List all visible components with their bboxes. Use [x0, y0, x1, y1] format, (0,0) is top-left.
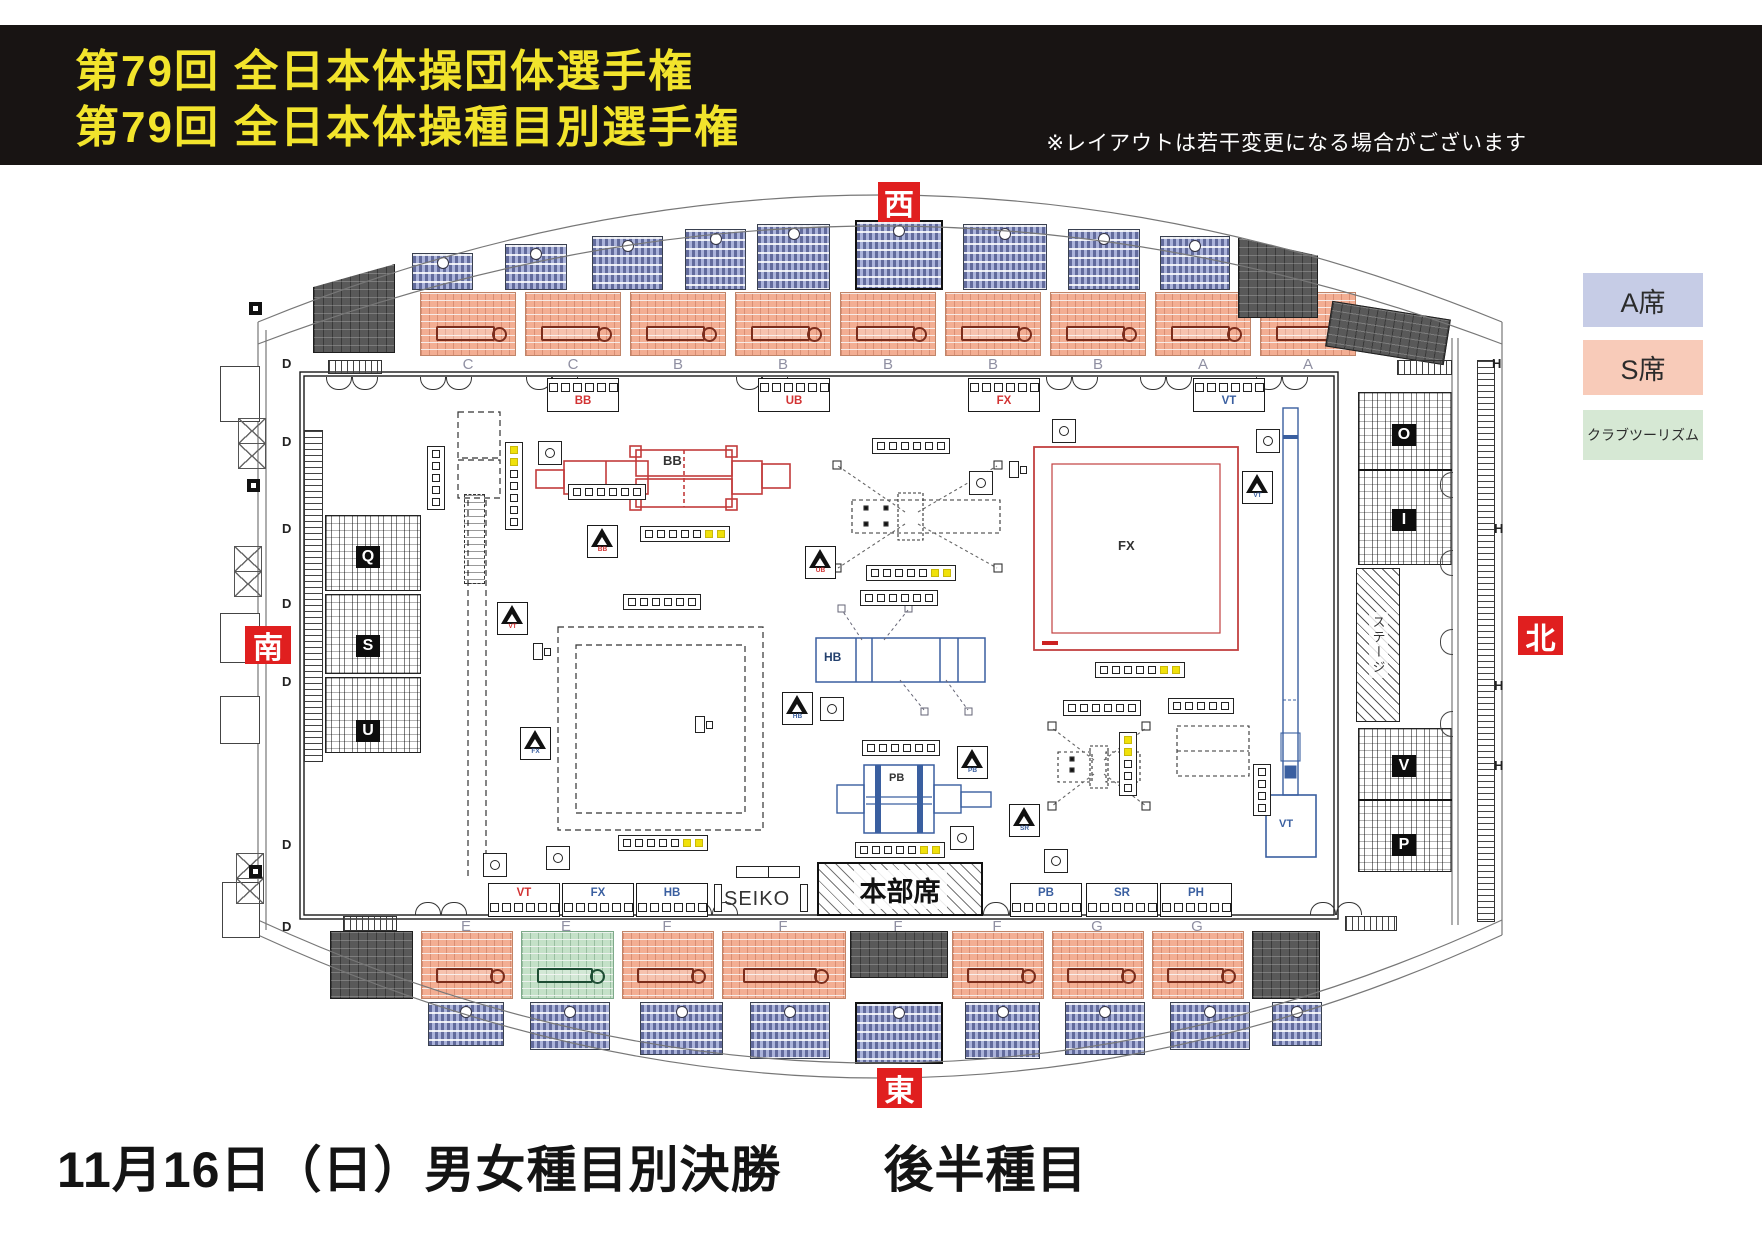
a-seat-block	[505, 244, 567, 290]
door-arc	[1440, 629, 1453, 655]
camera-bench	[967, 968, 1023, 983]
triangle-label: FX	[521, 749, 550, 756]
camera-box	[820, 697, 844, 721]
reserved-dark-section	[1238, 238, 1318, 318]
scaffold-brace	[236, 878, 264, 904]
camera-triangle-FX: FX	[520, 727, 551, 760]
section-letter-B: B	[988, 356, 998, 373]
legend-A席: A席	[1583, 273, 1703, 327]
judge-table-label: HB	[664, 888, 681, 900]
triangle-label: VT	[1243, 493, 1272, 500]
stand-label-U: U	[356, 720, 380, 742]
judge-panel	[862, 740, 940, 756]
judge-table-SR: SR	[1086, 883, 1158, 917]
judge-table-label: BB	[575, 396, 592, 408]
pommel-horse-ph	[1177, 726, 1249, 776]
judge-table-label: FX	[997, 396, 1012, 408]
section-letter-E: E	[461, 918, 471, 935]
judge-seats	[970, 383, 1039, 392]
camera-bench	[537, 968, 594, 983]
a-seat-block	[1170, 1002, 1250, 1050]
direction-西: 西	[878, 182, 920, 222]
triangle-glyph-inner	[597, 537, 607, 545]
judge-panel	[618, 835, 708, 851]
equipment-marker	[695, 716, 705, 733]
corridor-letter-D: D	[282, 521, 291, 536]
section-letter-F: F	[992, 918, 1001, 935]
camera-bench	[1067, 968, 1123, 983]
s-seat-section	[1052, 931, 1144, 999]
headquarters-label: 本部席	[854, 870, 947, 909]
equipment-tower	[464, 494, 485, 584]
judge-panel	[866, 565, 956, 581]
corridor-letter-D: D	[282, 356, 291, 371]
triangle-glyph-inner	[530, 739, 540, 747]
triangle-glyph-inner	[815, 558, 825, 566]
judge-panel	[872, 438, 950, 454]
s-seat-section	[735, 292, 831, 356]
arena-floor-plan: ステージ 本部席 SEIKO BB FX HB PB VT QSUOIVPCCB…	[0, 0, 1762, 1245]
structural-pillar	[249, 302, 262, 315]
camera-box	[1256, 429, 1280, 453]
triangle-glyph-inner	[792, 704, 802, 712]
seiko-timing-area: SEIKO	[712, 866, 810, 916]
judge-panel	[1168, 698, 1234, 714]
seiko-post-left	[714, 884, 722, 912]
triangle-label: UB	[806, 568, 835, 575]
wall-alcove	[220, 696, 260, 744]
a-seat-block	[963, 224, 1047, 290]
camera-triangle-HB: HB	[782, 692, 813, 725]
stair-strip	[1345, 916, 1397, 931]
door-arc	[1166, 377, 1192, 390]
camera-bench	[751, 326, 810, 341]
judge-table-FX: FX	[968, 378, 1040, 412]
triangle-glyph-inner	[507, 614, 517, 622]
stair-strip	[1477, 360, 1495, 922]
a-seat-block	[750, 1002, 830, 1059]
a-seat-block	[685, 229, 746, 290]
legend-S席: S席	[1583, 340, 1703, 395]
stand-label-V: V	[1392, 755, 1416, 777]
judge-table-VT: VT	[488, 883, 560, 917]
section-letter-G: G	[1191, 918, 1203, 935]
stage-label: ステージ	[1369, 612, 1388, 678]
stair-strip	[304, 430, 323, 762]
headquarters-table: 本部席	[817, 862, 983, 916]
camera-bench	[436, 326, 495, 341]
camera-bench	[637, 968, 693, 983]
s-seat-section	[840, 292, 936, 356]
camera-bench	[646, 326, 705, 341]
camera-bench	[856, 326, 915, 341]
judge-table-label: PH	[1188, 888, 1204, 900]
s-seat-section	[630, 292, 726, 356]
equipment-marker	[533, 643, 543, 660]
triangle-label: VT	[498, 624, 527, 631]
camera-triangle-VT: VT	[497, 602, 528, 635]
judge-seats	[760, 383, 829, 392]
pb-apparatus-label: PB	[889, 772, 904, 784]
floor-exercise-fx	[1034, 447, 1238, 650]
section-letter-B: B	[883, 356, 893, 373]
direction-南: 南	[245, 626, 291, 664]
camera-bench	[541, 326, 600, 341]
wall-alcove	[220, 366, 260, 422]
judge-table-label: VT	[517, 888, 532, 900]
corridor-letter-D: D	[282, 837, 291, 852]
structural-pillar	[249, 865, 262, 878]
vt-apparatus-label: VT	[1279, 818, 1293, 830]
corridor-letter-H: H	[1492, 356, 1501, 371]
stair-strip	[1397, 360, 1452, 375]
section-letter-E: E	[561, 918, 571, 935]
judge-seats	[1012, 903, 1081, 912]
competition-floor-wall	[300, 372, 1338, 919]
reserved-dark-section	[850, 931, 948, 978]
section-letter-B: B	[1093, 356, 1103, 373]
judge-panel	[1095, 662, 1185, 678]
equipment-marker	[1009, 461, 1019, 478]
triangle-glyph-inner	[1252, 483, 1262, 491]
s-seat-section	[525, 292, 621, 356]
judge-seats	[549, 383, 618, 392]
judge-panel	[855, 842, 945, 858]
door-arc	[441, 902, 467, 915]
corridor-letter-H: H	[1494, 678, 1503, 693]
a-seat-block	[855, 220, 943, 290]
door-arc	[1046, 377, 1072, 390]
corridor-letter-D: D	[282, 919, 291, 934]
warmup-area-dashed	[458, 412, 763, 880]
judge-table-label: VT	[1222, 396, 1237, 408]
judge-panel	[1253, 764, 1271, 816]
triangle-label: SR	[1010, 826, 1039, 833]
camera-triangle-BB: BB	[587, 525, 618, 558]
judge-panel	[1119, 732, 1137, 796]
door-arc	[1072, 377, 1098, 390]
door-arc	[446, 377, 472, 390]
stand-label-Q: Q	[356, 546, 380, 568]
triangle-glyph-inner	[1019, 816, 1029, 824]
door-arc	[983, 902, 1009, 915]
camera-bench	[961, 326, 1020, 341]
judge-panel	[640, 526, 730, 542]
camera-triangle-VT: VT	[1242, 471, 1273, 504]
section-letter-C: C	[463, 356, 474, 373]
section-letter-B: B	[673, 356, 683, 373]
section-letter-A: A	[1303, 356, 1313, 373]
hb-apparatus-label: HB	[824, 650, 841, 664]
section-letter-A: A	[1198, 356, 1208, 373]
s-seat-section	[1152, 931, 1244, 999]
judge-table-FX: FX	[562, 883, 634, 917]
camera-bench	[1167, 968, 1223, 983]
judge-seats	[490, 903, 559, 912]
stand-label-S: S	[356, 635, 380, 657]
a-seat-block	[1068, 229, 1140, 290]
stair-strip	[343, 916, 397, 931]
stand-label-P: P	[1392, 834, 1416, 856]
reserved-dark-section	[330, 931, 413, 999]
judge-seats	[638, 903, 707, 912]
judge-table-PB: PB	[1010, 883, 1082, 917]
section-letter-C: C	[568, 356, 579, 373]
scaffold-brace	[234, 571, 262, 597]
door-arc	[1140, 377, 1166, 390]
stair-strip	[328, 360, 382, 374]
judge-panel	[860, 590, 938, 606]
judge-table-label: PB	[1038, 888, 1054, 900]
corridor-letter-D: D	[282, 674, 291, 689]
vault-runway-vt	[1266, 408, 1316, 857]
club-tourism-section	[521, 931, 614, 999]
s-seat-section	[1155, 292, 1251, 356]
a-seat-block	[412, 253, 473, 290]
judge-seats	[1088, 903, 1157, 912]
door-arc	[415, 902, 441, 915]
seiko-post-right	[800, 884, 808, 912]
camera-bench	[743, 968, 818, 983]
a-seat-block	[1160, 236, 1230, 290]
a-seat-block	[757, 224, 830, 290]
corridor-letter-D: D	[282, 434, 291, 449]
a-seat-block	[965, 1002, 1040, 1059]
triangle-label: HB	[783, 714, 812, 721]
door-arc	[420, 377, 446, 390]
camera-box	[969, 471, 993, 495]
judge-seats	[1195, 383, 1264, 392]
camera-bench	[1171, 326, 1230, 341]
door-arc	[1282, 377, 1308, 390]
s-seat-section	[952, 931, 1044, 999]
door-arc	[1440, 550, 1453, 576]
s-seat-section	[945, 292, 1041, 356]
s-seat-section	[420, 292, 516, 356]
judge-table-BB: BB	[547, 378, 619, 412]
seiko-label: SEIKO	[724, 888, 790, 911]
judge-seats	[564, 903, 633, 912]
stage-area: ステージ	[1356, 568, 1400, 722]
s-seat-section	[622, 931, 714, 999]
judge-panel	[427, 446, 445, 510]
side-stand-block	[325, 594, 421, 674]
corridor-letter-H: H	[1494, 758, 1503, 773]
stand-label-O: O	[1392, 424, 1416, 446]
section-letter-F: F	[778, 918, 787, 935]
reserved-dark-section	[1252, 931, 1320, 999]
judge-panel	[623, 594, 701, 610]
session-caption: 11月16日（日）男女種目別決勝 後半種目	[57, 1130, 1087, 1202]
judge-table-label: FX	[591, 888, 606, 900]
camera-triangle-UB: UB	[805, 546, 836, 579]
judge-table-label: UB	[786, 396, 803, 408]
camera-box	[1044, 849, 1068, 873]
a-seat-block	[530, 1002, 610, 1050]
camera-box	[1052, 419, 1076, 443]
a-seat-block	[428, 1002, 504, 1046]
section-letter-F: F	[893, 918, 902, 935]
judge-table-VT: VT	[1193, 378, 1265, 412]
door-arc	[1310, 902, 1336, 915]
judge-seats	[1162, 903, 1231, 912]
corridor-letter-H: H	[1494, 521, 1503, 536]
door-arc	[1336, 902, 1362, 915]
bb-apparatus-label: BB	[663, 453, 682, 468]
camera-triangle-SR: SR	[1009, 804, 1040, 837]
door-arc	[352, 377, 378, 390]
section-letter-B: B	[778, 356, 788, 373]
camera-box	[546, 846, 570, 870]
triangle-glyph-inner	[967, 758, 977, 766]
scaffold-brace	[238, 443, 266, 469]
judge-table-label: SR	[1114, 888, 1130, 900]
stand-label-I: I	[1392, 509, 1416, 531]
judge-table-HB: HB	[636, 883, 708, 917]
fx-apparatus-label: FX	[1118, 538, 1135, 553]
a-seat-block	[592, 236, 663, 290]
a-seat-block	[1272, 1002, 1322, 1046]
camera-box	[483, 853, 507, 877]
door-arc	[326, 377, 352, 390]
judge-panel	[568, 484, 646, 500]
camera-box	[950, 826, 974, 850]
seiko-scoreboard	[736, 866, 800, 878]
judge-panel	[505, 442, 523, 530]
section-letter-F: F	[662, 918, 671, 935]
a-seat-block	[855, 1002, 943, 1064]
camera-triangle-PB: PB	[957, 746, 988, 779]
triangle-label: PB	[958, 768, 987, 775]
direction-北: 北	[1518, 616, 1563, 655]
legend-クラブツーリズム: クラブツーリズム	[1583, 410, 1703, 460]
reserved-dark-section	[313, 264, 395, 353]
scaffold-brace	[234, 546, 262, 572]
judge-table-PH: PH	[1160, 883, 1232, 917]
a-seat-block	[640, 1002, 723, 1055]
s-seat-section	[1050, 292, 1146, 356]
s-seat-section	[722, 931, 846, 999]
venue-layout-page: 第79回 全日本体操団体選手権 第79回 全日本体操種目別選手権 ※レイアウトは…	[0, 0, 1762, 1245]
direction-東: 東	[877, 1068, 922, 1108]
scaffold-brace	[238, 418, 266, 444]
judge-table-UB: UB	[758, 378, 830, 412]
section-letter-G: G	[1091, 918, 1103, 935]
judge-panel	[1063, 700, 1141, 716]
a-seat-block	[1065, 1002, 1145, 1055]
camera-bench	[1066, 326, 1125, 341]
side-stand-block	[1358, 392, 1452, 565]
triangle-label: BB	[588, 547, 617, 554]
s-seat-section	[421, 931, 513, 999]
corridor-letter-D: D	[282, 596, 291, 611]
camera-box	[538, 441, 562, 465]
camera-bench	[436, 968, 492, 983]
structural-pillar	[247, 479, 260, 492]
